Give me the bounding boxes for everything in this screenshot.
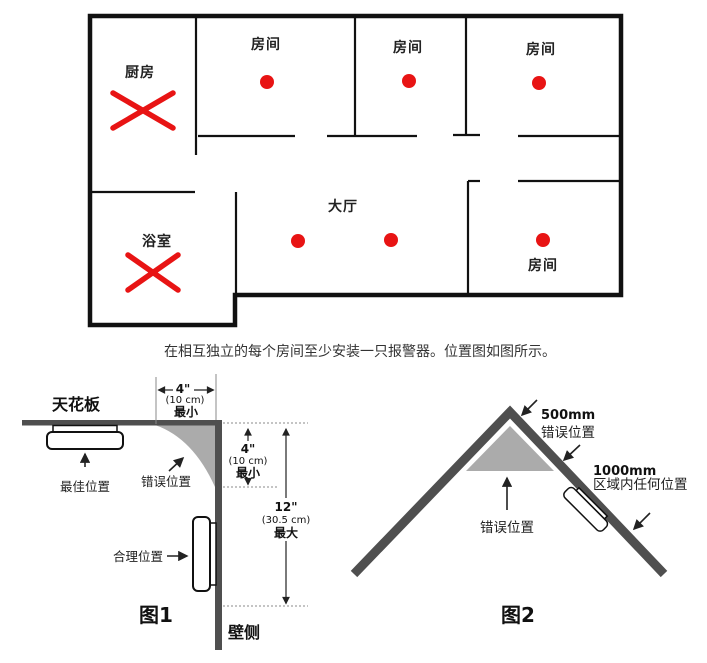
wrong-position-label: 错误位置: [141, 474, 191, 489]
diagram-canvas: 厨房 房间 房间 房间 浴室 大厅 房间 在相互独立的每个房间至少安装一只报警器…: [0, 0, 707, 663]
dim-top-minmax: 最小: [174, 404, 198, 419]
figure2-pitched-roof-placement: 500mm 错误位置 1000mm 区域内任何位置 错误位置 图2: [354, 400, 688, 627]
dim-top-value: 4": [176, 382, 191, 396]
smoke-alarm-wall: [193, 517, 216, 591]
room-label-top3: 房间: [526, 41, 556, 58]
dim-wall-metric: (30.5 cm): [262, 515, 311, 526]
alarm-dots: [260, 74, 550, 248]
apex-zone-label: 错误位置: [541, 425, 595, 441]
ok-position-label: 合理位置: [113, 549, 163, 564]
zone-1000-arrow: [634, 513, 650, 529]
dim-wall-value: 12": [275, 500, 298, 514]
room-label-bathroom: 浴室: [142, 233, 172, 250]
smoke-alarm-installation-diagram: 厨房 房间 房间 房间 浴室 大厅 房间 在相互独立的每个房间至少安装一只报警器…: [0, 0, 707, 663]
slope-zone-label: 区域内任何位置: [593, 477, 688, 493]
room-label-top1: 房间: [251, 36, 281, 53]
dim-side-value: 4": [241, 442, 256, 456]
wrong-position-label-fig2: 错误位置: [480, 520, 534, 536]
wrong-position-arrow: [169, 458, 183, 471]
caption-text: 在相互独立的每个房间至少安装一只报警器。位置图如图所示。: [164, 344, 556, 360]
ceiling-label: 天花板: [52, 395, 101, 414]
figure1-ceiling-wall-placement: 天花板 最佳位置 错误位置 合理位置 4" (10 cm) 最小 4" (10 …: [22, 374, 310, 650]
best-position-label: 最佳位置: [60, 479, 110, 494]
dim-wall-minmax: 最大: [274, 525, 298, 540]
dimension-side: 4" (10 cm) 最小: [223, 423, 308, 487]
alarm-dot-icon: [291, 234, 305, 248]
room-label-hall: 大厅: [328, 198, 358, 215]
smoke-alarm-ceiling: [47, 426, 123, 450]
alarm-dot-icon: [402, 74, 416, 88]
room-label-bottom-right: 房间: [528, 257, 558, 274]
alarm-dot-icon: [536, 233, 550, 247]
no-alarm-x-icon-kitchen: [113, 93, 173, 128]
alarm-dot-icon: [384, 233, 398, 247]
wall-side-label: 壁侧: [228, 623, 260, 642]
ceiling-bar: [22, 420, 222, 426]
floor-plan: 厨房 房间 房间 房间 浴室 大厅 房间: [90, 16, 621, 325]
apex-zone-value: 500mm: [541, 408, 595, 423]
figure2-title: 图2: [501, 603, 535, 627]
figure1-title: 图1: [139, 603, 173, 627]
apex-arrow: [522, 400, 537, 415]
alarm-dot-icon: [532, 76, 546, 90]
dim-side-minmax: 最小: [236, 465, 260, 480]
no-alarm-x-icon-bathroom: [128, 255, 178, 290]
alarm-dot-icon: [260, 75, 274, 89]
room-label-top2: 房间: [393, 39, 423, 56]
zone-500-arrow: [564, 445, 580, 460]
dimension-top: 4" (10 cm) 最小: [156, 374, 216, 424]
room-label-kitchen: 厨房: [125, 64, 155, 81]
